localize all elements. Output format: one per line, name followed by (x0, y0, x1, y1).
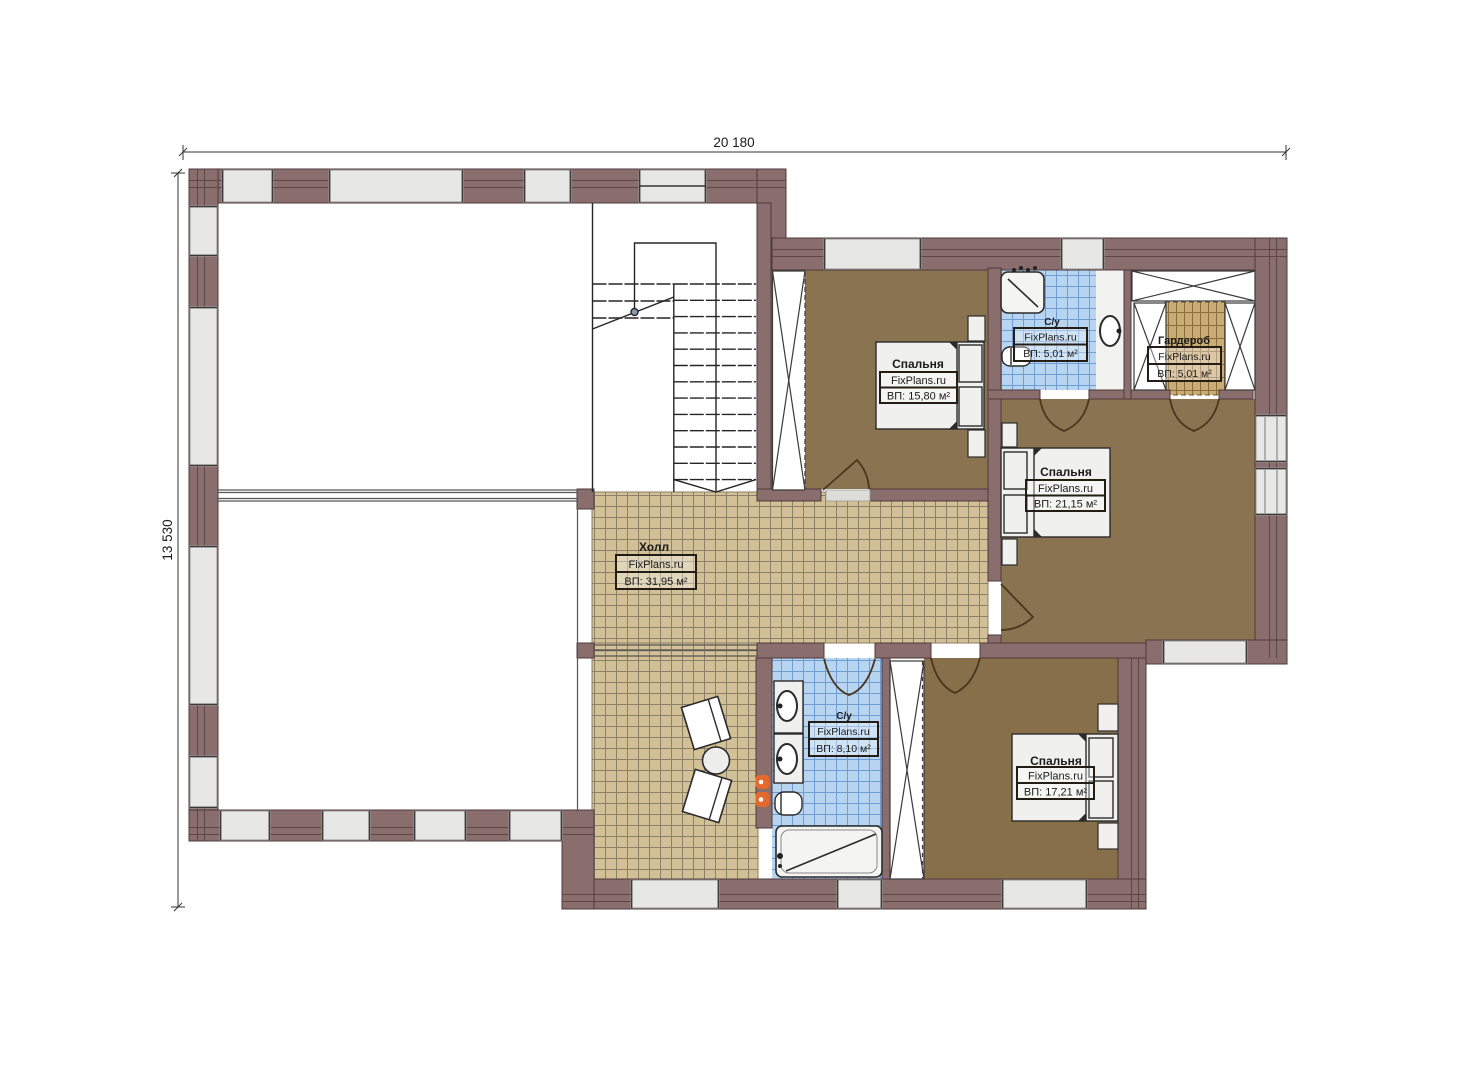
svg-text:ВП: 5,01 м²: ВП: 5,01 м² (1157, 368, 1212, 380)
svg-text:Холл: Холл (639, 540, 669, 554)
svg-text:FixPlans.ru: FixPlans.ru (1028, 771, 1083, 783)
svg-text:ВП: 21,15 м²: ВП: 21,15 м² (1034, 499, 1098, 511)
svg-text:ВП: 31,95 м²: ВП: 31,95 м² (624, 576, 688, 588)
svg-text:FixPlans.ru: FixPlans.ru (1158, 351, 1211, 363)
svg-text:С/у: С/у (1044, 317, 1060, 328)
svg-text:FixPlans.ru: FixPlans.ru (1038, 483, 1093, 495)
svg-text:FixPlans.ru: FixPlans.ru (891, 375, 946, 387)
svg-text:Гардероб: Гардероб (1158, 335, 1210, 347)
svg-text:FixPlans.ru: FixPlans.ru (817, 726, 870, 738)
svg-text:Спальня: Спальня (1040, 465, 1092, 479)
svg-text:20 180: 20 180 (713, 135, 754, 150)
svg-text:С/у: С/у (836, 711, 852, 722)
svg-text:FixPlans.ru: FixPlans.ru (1024, 332, 1077, 344)
svg-text:ВП: 5,01 м²: ВП: 5,01 м² (1023, 348, 1078, 360)
svg-text:ВП: 15,80 м²: ВП: 15,80 м² (887, 391, 951, 403)
svg-text:Спальня: Спальня (1030, 754, 1082, 768)
svg-text:ВП: 17,21 м²: ВП: 17,21 м² (1024, 787, 1088, 799)
svg-text:13 530: 13 530 (160, 519, 175, 560)
svg-text:Спальня: Спальня (892, 357, 944, 371)
svg-text:FixPlans.ru: FixPlans.ru (628, 559, 683, 571)
svg-text:ВП: 8,10 м²: ВП: 8,10 м² (816, 743, 871, 755)
